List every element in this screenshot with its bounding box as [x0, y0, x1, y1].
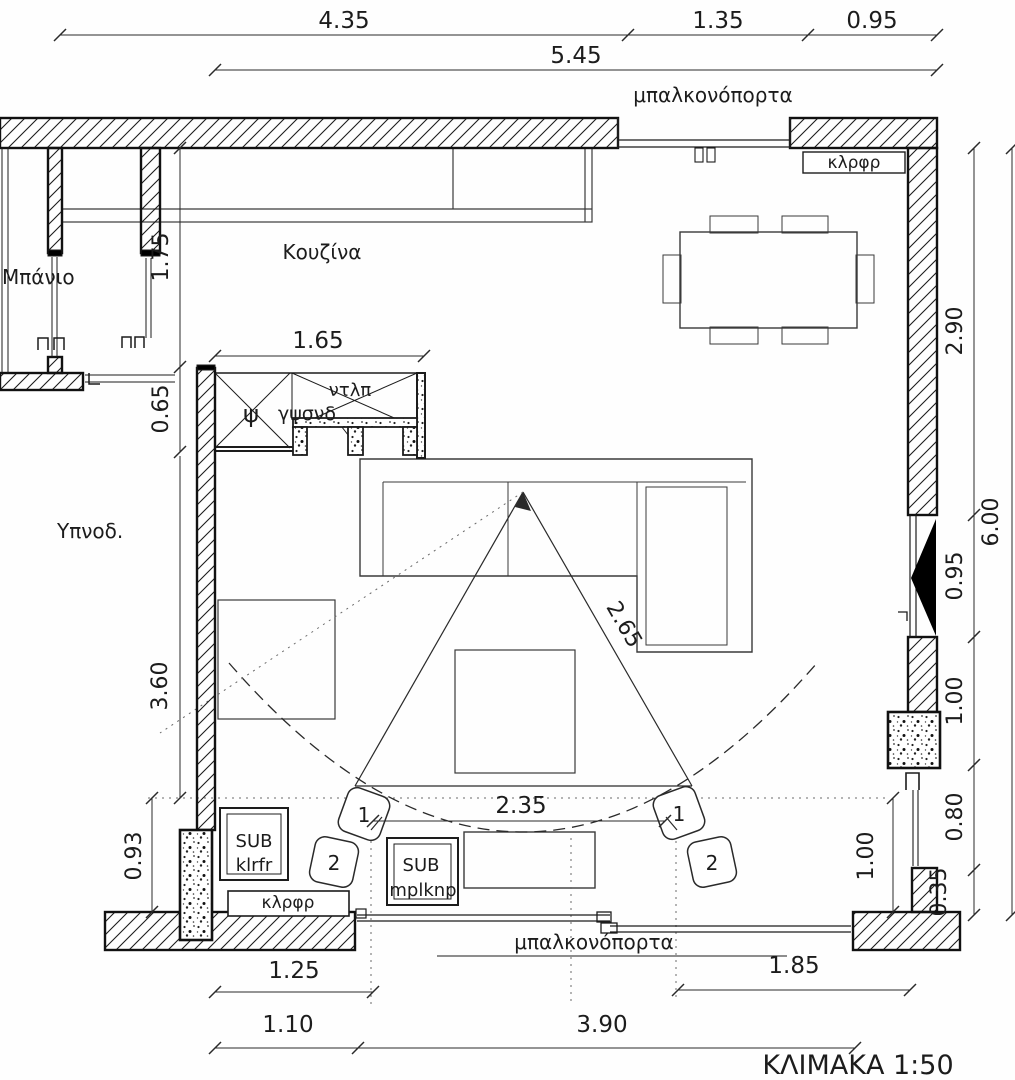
dining-chair	[710, 327, 758, 344]
wall-bathroom-left	[48, 148, 62, 253]
floor-plan-svg: 4.35 1.35 0.95 5.45 μπαλκονόπορτα Μπάνιο…	[0, 0, 1015, 1080]
closet-label-bottom-left: κλρφρ	[262, 893, 315, 913]
sub-left-line2: klrfr	[236, 855, 273, 876]
room-label-kitchen: Κουζίνα	[283, 240, 362, 264]
dining-chair	[856, 255, 874, 303]
coffee-table	[455, 650, 575, 773]
wall-right-mid	[908, 637, 937, 712]
column-bottom-left	[180, 830, 212, 940]
balcony-door-bottom-label: μπαλκονόπορτα	[514, 930, 673, 954]
dim-0-65: 0.65	[149, 385, 174, 434]
dim-top-1: 4.35	[318, 8, 369, 34]
dim-6-00: 6.00	[979, 498, 1004, 547]
wall-bottom-left	[105, 912, 355, 950]
dim-0-93: 0.93	[122, 832, 147, 881]
dining-table-set	[663, 216, 874, 344]
room-label-bedroom: Υπνοδ.	[56, 519, 123, 543]
closet-label-top-right: κλρφρ	[828, 153, 881, 173]
dim-top-3: 0.95	[846, 8, 897, 34]
room-label-bathroom: Μπάνιο	[2, 265, 75, 289]
wall-living-left	[197, 368, 215, 830]
dim-2-65: 2.65	[601, 597, 647, 652]
right-window	[898, 515, 936, 637]
wall-hall-horizontal	[0, 373, 83, 390]
wall-top-right	[790, 118, 937, 148]
dining-chair	[710, 216, 758, 233]
dim-2-35: 2.35	[495, 793, 546, 819]
plasterboard-label: γψσνδ	[278, 403, 336, 425]
dim-top-overall: 5.45	[550, 43, 601, 69]
dim-1-65: 1.65	[292, 328, 343, 354]
dim-3-60: 3.60	[148, 662, 173, 711]
wall-corner-bottom-right	[853, 912, 960, 950]
walls-hatched	[0, 118, 960, 950]
wall-right-upper	[908, 148, 937, 515]
dining-chair	[663, 255, 681, 303]
scale-label: ΚΛΙΜΑΚΑ 1:50	[762, 1050, 953, 1080]
psi-label: ψ	[243, 400, 259, 428]
sofa	[360, 459, 752, 652]
tv-bench	[464, 832, 595, 888]
dim-0-35: 0.35	[927, 868, 952, 917]
speaker-surround-left-label: 2	[328, 851, 341, 875]
dim-3-90: 3.90	[576, 1012, 627, 1038]
dim-0-95: 0.95	[943, 552, 968, 601]
floor-plan-drawing: 4.35 1.35 0.95 5.45 μπαλκονόπορτα Μπάνιο…	[0, 0, 1015, 1080]
armchair	[218, 600, 335, 719]
dim-1-00-interior: 1.00	[854, 832, 879, 881]
dining-chair	[782, 327, 828, 344]
dim-0-80: 0.80	[943, 793, 968, 842]
speaker-surround-right-label: 2	[706, 851, 719, 875]
speaker-front-right-label: 1	[673, 802, 686, 826]
sub-center-line1: SUB	[403, 855, 440, 876]
dim-1-10: 1.10	[262, 1012, 313, 1038]
sub-center-line2: mplknp	[389, 880, 456, 901]
dim-1-00-right: 1.00	[943, 677, 968, 726]
window-glazing-triangle	[911, 519, 936, 636]
dim-2-90: 2.90	[943, 307, 968, 356]
sub-left-line1: SUB	[236, 831, 273, 852]
right-door	[906, 773, 919, 866]
wardrobe-label: ντλπ	[329, 380, 372, 401]
balcony-door-top	[618, 118, 790, 162]
dim-1-75: 1.75	[149, 233, 174, 282]
speaker-front-left-label: 1	[358, 803, 371, 827]
dining-chair	[782, 216, 828, 233]
dim-top-2: 1.35	[692, 8, 743, 34]
column-right	[888, 712, 940, 768]
dim-1-85: 1.85	[768, 953, 819, 979]
dim-1-25: 1.25	[268, 958, 319, 984]
wall-hall-step	[48, 357, 62, 373]
dining-table	[680, 232, 857, 328]
wall-top-left	[0, 118, 618, 148]
balcony-door-top-label: μπαλκονόπορτα	[633, 83, 792, 107]
